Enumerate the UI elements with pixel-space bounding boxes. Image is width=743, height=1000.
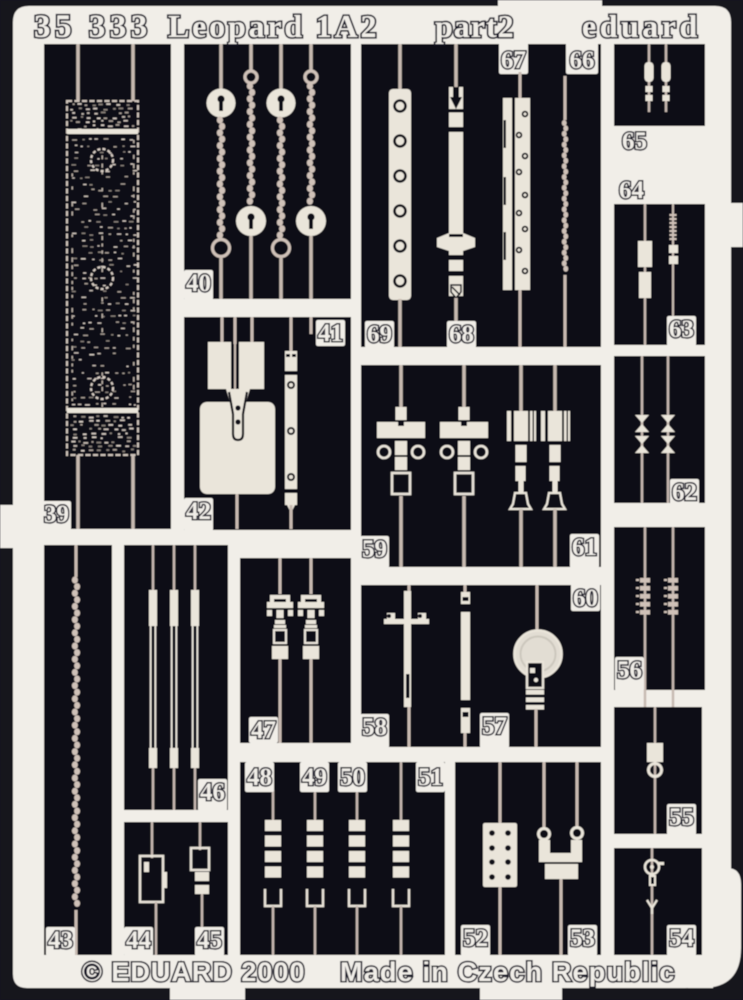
svg-text:62: 62 xyxy=(672,479,697,506)
svg-text:Leopard 1A2: Leopard 1A2 xyxy=(168,8,379,44)
svg-text:49: 49 xyxy=(302,764,327,791)
svg-text:48: 48 xyxy=(247,764,272,791)
svg-text:© EDUARD 2000: © EDUARD 2000 xyxy=(82,957,305,987)
svg-text:45: 45 xyxy=(197,927,222,954)
svg-text:43: 43 xyxy=(48,927,73,954)
svg-text:42: 42 xyxy=(186,498,211,525)
svg-text:51: 51 xyxy=(418,764,443,791)
svg-text:66: 66 xyxy=(570,47,595,74)
svg-text:60: 60 xyxy=(573,585,598,612)
svg-text:59: 59 xyxy=(362,536,387,563)
svg-text:Made in Czech Republic: Made in Czech Republic xyxy=(340,957,675,987)
svg-text:39: 39 xyxy=(44,501,69,528)
svg-text:55: 55 xyxy=(669,804,694,831)
svg-text:68: 68 xyxy=(449,321,474,348)
svg-text:67: 67 xyxy=(501,47,526,74)
svg-text:part2: part2 xyxy=(435,8,515,44)
svg-text:63: 63 xyxy=(669,316,694,343)
svg-text:46: 46 xyxy=(200,779,225,806)
svg-text:52: 52 xyxy=(463,925,488,952)
svg-text:61: 61 xyxy=(572,534,597,561)
svg-text:41: 41 xyxy=(318,320,343,347)
svg-text:eduard: eduard xyxy=(582,8,701,44)
svg-text:40: 40 xyxy=(186,270,211,297)
svg-text:69: 69 xyxy=(367,321,392,348)
svg-text:53: 53 xyxy=(570,925,595,952)
svg-text:58: 58 xyxy=(362,714,387,741)
svg-text:50: 50 xyxy=(340,764,365,791)
svg-text:47: 47 xyxy=(251,717,276,744)
svg-text:44: 44 xyxy=(126,927,152,954)
svg-text:56: 56 xyxy=(617,657,642,684)
svg-text:64: 64 xyxy=(619,177,645,204)
svg-text:35 333: 35 333 xyxy=(34,9,152,45)
svg-text:65: 65 xyxy=(622,128,647,155)
svg-text:54: 54 xyxy=(669,925,695,952)
svg-text:57: 57 xyxy=(482,713,507,740)
